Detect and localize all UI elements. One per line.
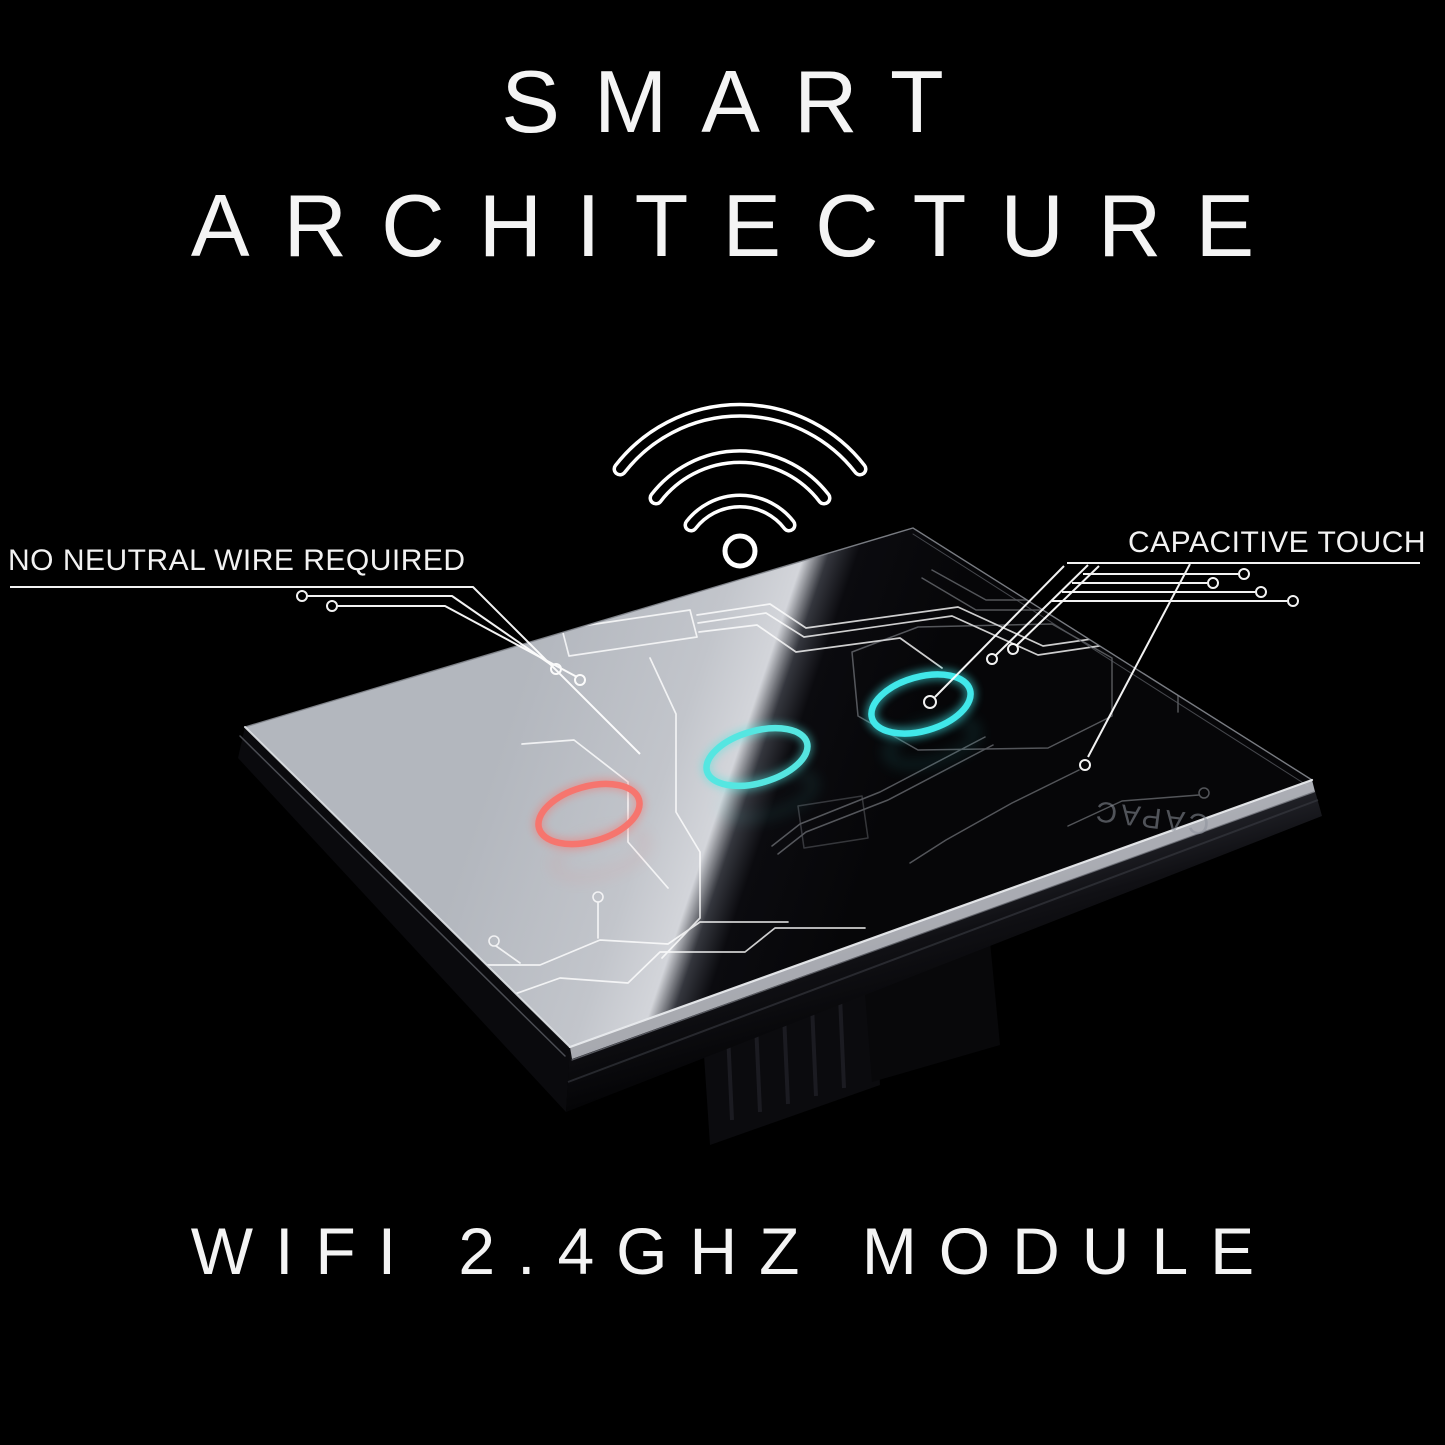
callout-no-neutral-wire: NO NEUTRAL WIRE REQUIRED bbox=[8, 544, 466, 578]
callout-capacitive-touch: CAPACITIVE TOUCH bbox=[1128, 526, 1426, 560]
footer-text: WIFI 2.4GHZ MODULE bbox=[169, 1218, 1276, 1284]
title-line-2: ARCHITECTURE bbox=[157, 182, 1288, 270]
title-line-1: SMART bbox=[467, 58, 977, 146]
wifi-icon bbox=[620, 410, 860, 566]
poster: SMART ARCHITECTURE NO NEUTRAL WIRE REQUI… bbox=[0, 0, 1445, 1445]
